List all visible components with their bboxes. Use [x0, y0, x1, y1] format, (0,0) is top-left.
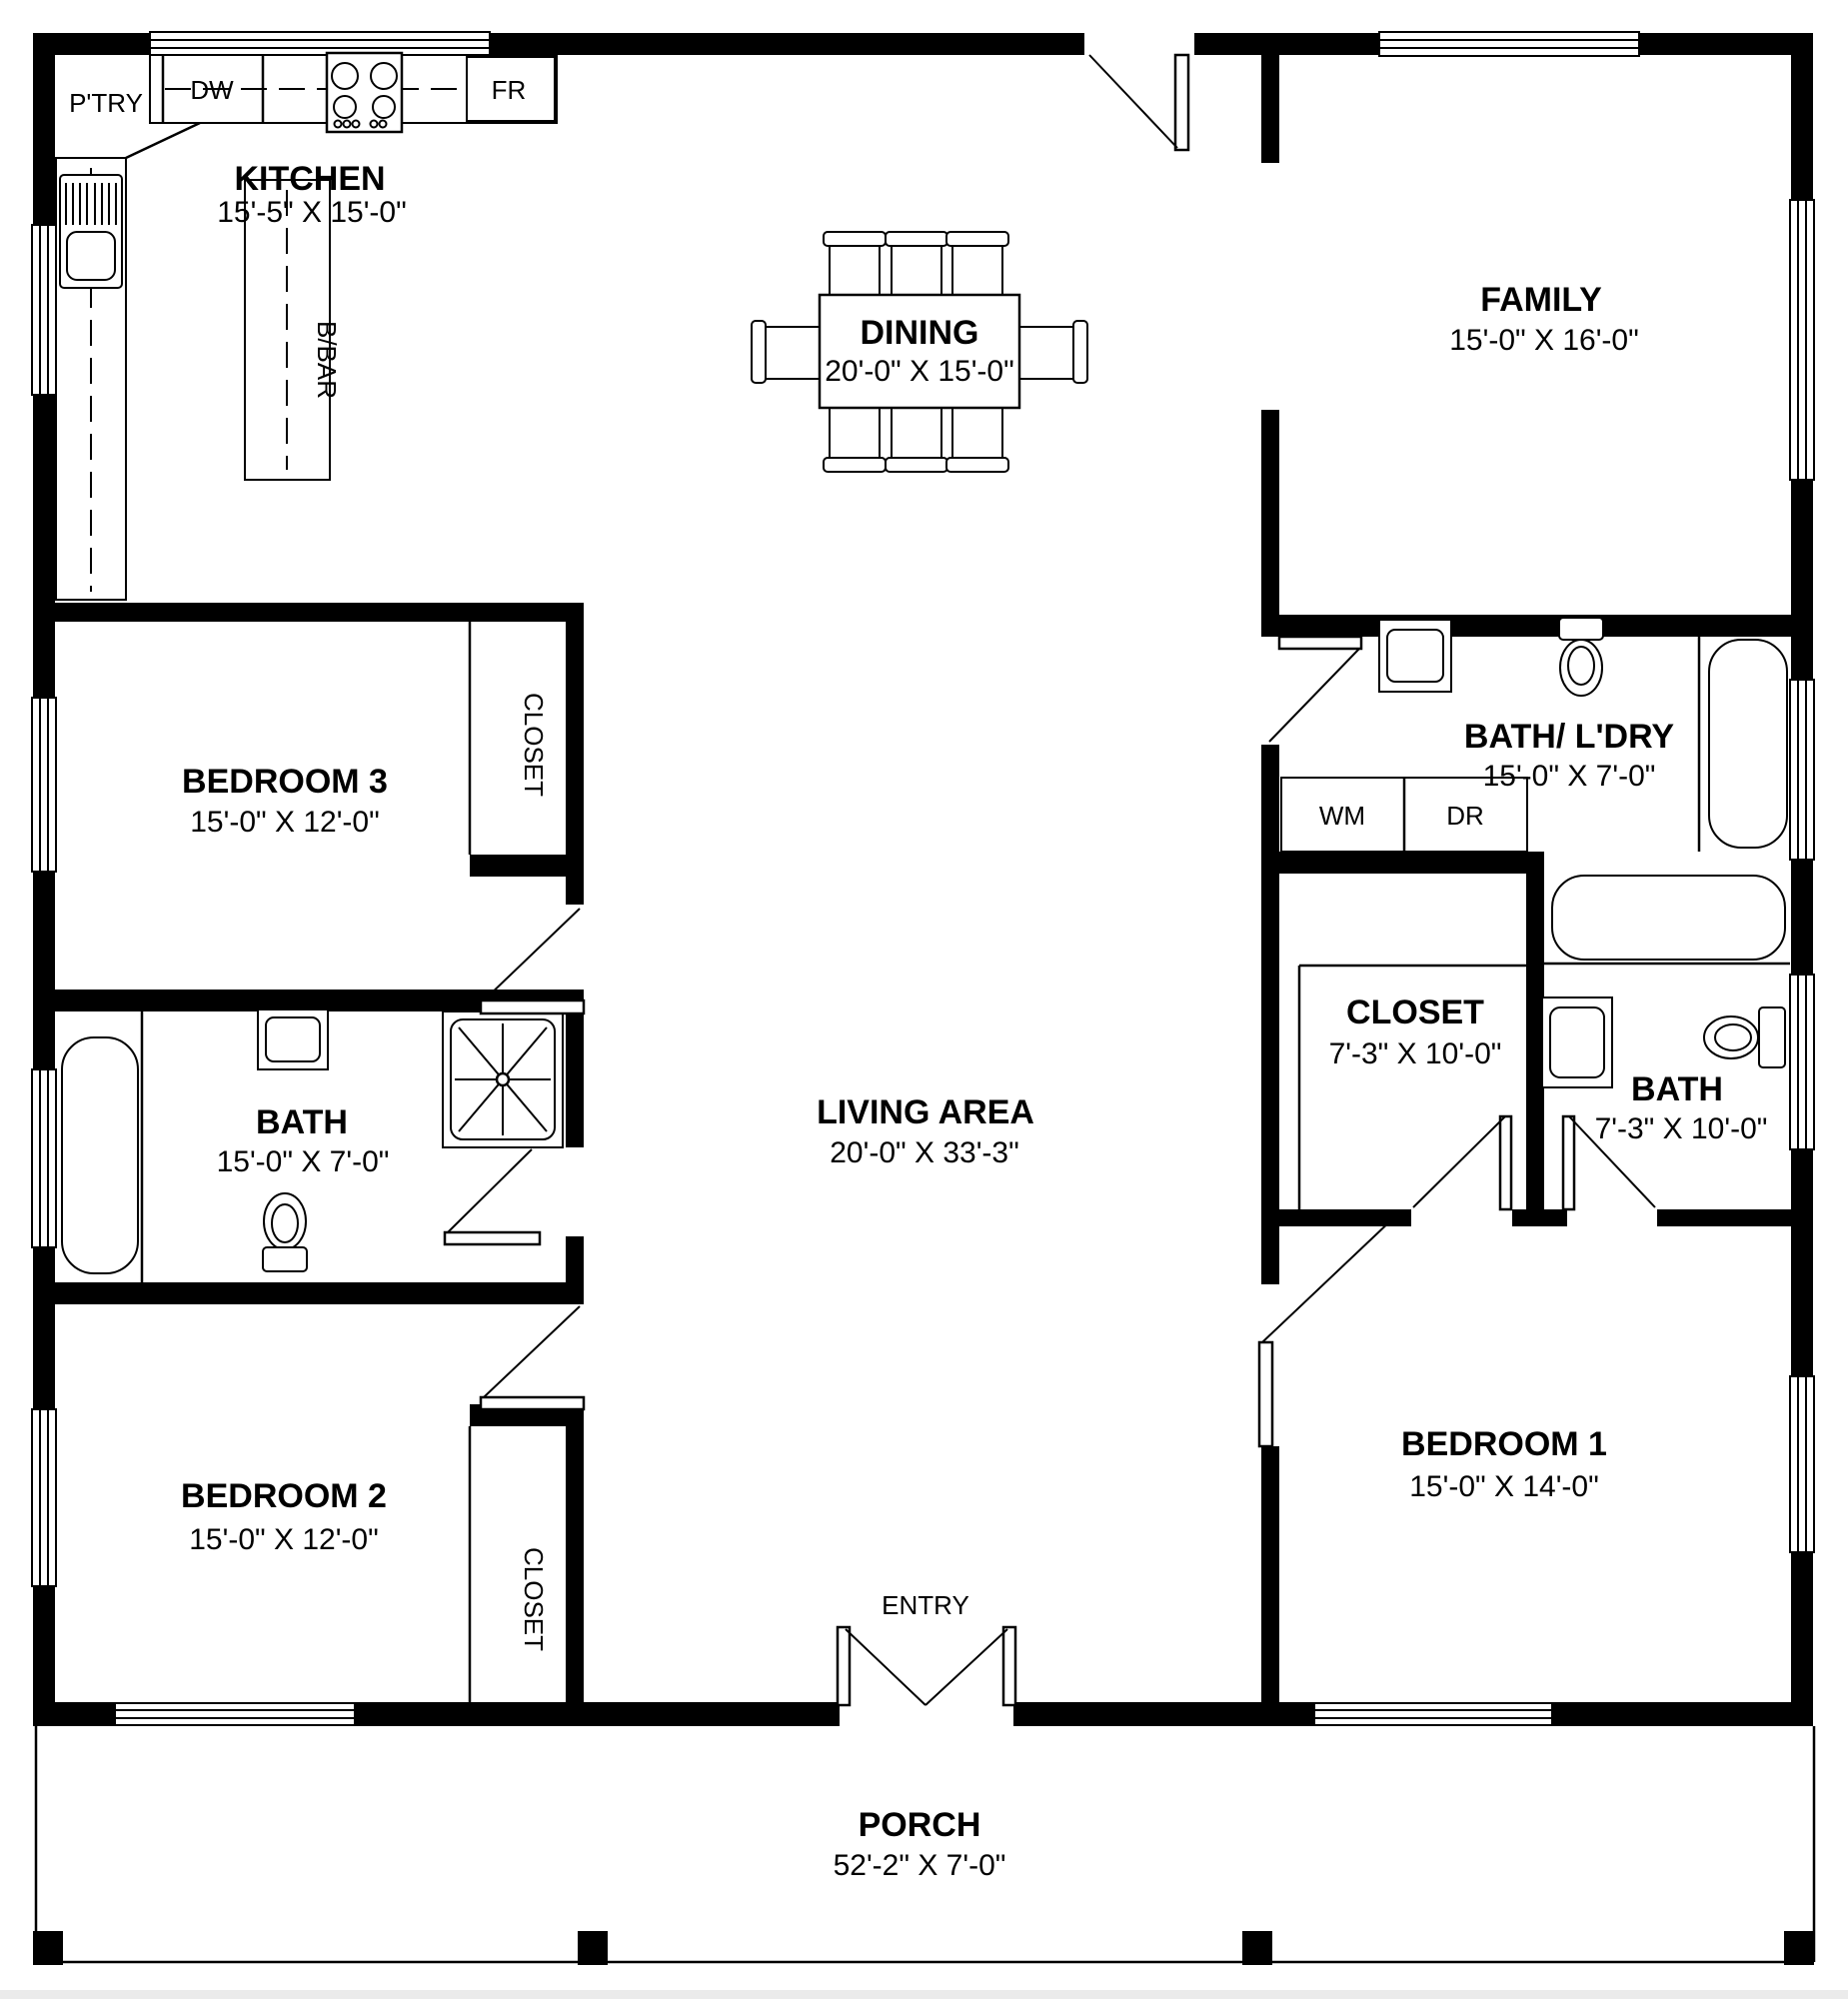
bathtub	[1552, 876, 1785, 960]
chair	[752, 321, 822, 383]
dishwasher-label: DW	[190, 75, 234, 105]
window-family-right	[1790, 200, 1814, 480]
door-bath-laundry	[1269, 637, 1361, 742]
window-kitchen-top	[150, 32, 490, 56]
bedroom3-dims: 15'-0" X 12'-0"	[190, 806, 380, 839]
chair	[1017, 321, 1087, 383]
wall-bath-master-bottom	[1657, 1209, 1791, 1226]
wall-living-east-stub-mid	[1261, 410, 1279, 637]
porch-dims: 52'-2" X 7'-0"	[834, 1849, 1006, 1882]
closet-master-title: CLOSET	[1346, 994, 1484, 1031]
family-title: FAMILY	[1480, 281, 1602, 319]
porch-post	[33, 1931, 63, 1965]
shower	[443, 1011, 563, 1147]
floor-plan-drawing: P'TRY DW FR KITCHEN 15'-5" X 15'-0" B/BA…	[0, 0, 1848, 1999]
kitchen-fixtures	[56, 53, 557, 600]
bathtub	[62, 1037, 138, 1273]
bedroom3-title: BEDROOM 3	[182, 763, 388, 801]
closet-bedroom2-label: CLOSET	[519, 1547, 549, 1651]
wall-closet-bottom-left	[1279, 1209, 1411, 1226]
bedroom2-title: BEDROOM 2	[181, 1477, 387, 1515]
window-kitchen-left	[32, 225, 56, 395]
bedroom1-dims: 15'-0" X 14'-0"	[1409, 1470, 1599, 1503]
window-family-top	[1379, 32, 1639, 56]
entry-label: ENTRY	[882, 1590, 969, 1620]
wall-living-west-4	[566, 1399, 584, 1702]
window-bedroom1-right	[1790, 1376, 1814, 1552]
door-closet-master	[1413, 1116, 1511, 1209]
window-bath-laundry-right	[1790, 680, 1814, 860]
laundry-sink	[1379, 620, 1451, 692]
porch-post	[1784, 1931, 1814, 1965]
toilet	[263, 1193, 307, 1271]
wall-living-east-stub-top	[1261, 33, 1279, 163]
wall-living-west-3	[566, 1236, 584, 1304]
toilet	[1704, 1007, 1785, 1067]
dining-set	[752, 232, 1087, 472]
bath-master-title: BATH	[1631, 1070, 1723, 1108]
bath-master-fixtures	[1542, 876, 1785, 1087]
dining-dims: 20'-0" X 15'-0"	[825, 355, 1014, 388]
wall-family-bathlaundry	[1261, 615, 1813, 637]
porch-post	[578, 1931, 608, 1965]
bath-main-title: BATH	[256, 1103, 348, 1141]
breakfast-bar-label: B/BAR	[312, 321, 342, 399]
kitchen-dims: 15'-5" X 15'-0"	[217, 196, 407, 229]
pantry-diagonal	[126, 123, 200, 158]
pantry-label: P'TRY	[69, 88, 143, 118]
bedroom1-title: BEDROOM 1	[1401, 1425, 1607, 1463]
chair	[946, 232, 1008, 304]
window-bedroom3-left	[32, 698, 56, 872]
living-title: LIVING AREA	[817, 1093, 1034, 1131]
wall-kitchen-bedroom3	[55, 603, 584, 622]
dryer-label: DR	[1446, 801, 1484, 831]
closet-bedroom3-label: CLOSET	[519, 693, 549, 797]
stove	[327, 53, 402, 132]
closet-master-dims: 7'-3" X 10'-0"	[1329, 1037, 1502, 1070]
porch-post	[1242, 1931, 1272, 1965]
chair	[886, 400, 947, 472]
bath-main-dims: 15'-0" X 7'-0"	[217, 1145, 390, 1178]
wall-living-west-2	[566, 1011, 584, 1147]
door-top-exterior	[1089, 55, 1188, 150]
fridge-label: FR	[492, 75, 527, 105]
wall-bath-bedroom2	[55, 1282, 584, 1304]
kitchen-sink	[60, 175, 122, 288]
bath-master-dims: 7'-3" X 10'-0"	[1595, 1112, 1768, 1145]
chair	[946, 400, 1008, 472]
bath-sink	[258, 1009, 328, 1069]
floor-plan-page: P'TRY DW FR KITCHEN 15'-5" X 15'-0" B/BA…	[0, 0, 1848, 1999]
bath-sink	[1542, 998, 1612, 1087]
family-dims: 15'-0" X 16'-0"	[1449, 324, 1639, 357]
window-bedroom2-left	[32, 1409, 56, 1586]
wall-closet3-bottom	[470, 855, 584, 877]
door-entry-double	[838, 1627, 1015, 1705]
chair	[824, 232, 886, 304]
window-bath-left	[32, 1069, 56, 1247]
wall-living-east-2	[1261, 1446, 1279, 1702]
room-labels: P'TRY DW FR KITCHEN 15'-5" X 15'-0" B/BA…	[69, 75, 1767, 1882]
door-bath-main	[445, 1149, 540, 1244]
chair	[824, 400, 886, 472]
washer-label: WM	[1319, 801, 1365, 831]
bath-laundry-title: BATH/ L'DRY	[1464, 718, 1674, 756]
wall-closet-bottom-mid	[1512, 1209, 1567, 1226]
toilet	[1559, 618, 1603, 696]
dining-title: DINING	[861, 314, 979, 352]
kitchen-title: KITCHEN	[234, 160, 385, 198]
chair	[886, 232, 947, 304]
bathtub	[1709, 640, 1787, 848]
wall-living-east-1	[1261, 745, 1279, 1284]
living-dims: 20'-0" X 33'-3"	[830, 1136, 1019, 1169]
window-bedroom2-bottom	[115, 1703, 355, 1725]
door-bedroom1	[1259, 1217, 1394, 1446]
window-bedroom1-bottom	[1314, 1703, 1552, 1725]
opening-top-door	[1084, 31, 1194, 57]
wall-bathlaundry-closet	[1261, 852, 1539, 874]
door-bedroom2	[481, 1306, 584, 1409]
footer-strip	[0, 1990, 1848, 1999]
bath-laundry-dims: 15'-0" X 7'-0"	[1483, 760, 1656, 793]
window-bath-master-right	[1790, 975, 1814, 1149]
bedroom2-dims: 15'-0" X 12'-0"	[189, 1523, 379, 1556]
porch-title: PORCH	[859, 1806, 981, 1844]
